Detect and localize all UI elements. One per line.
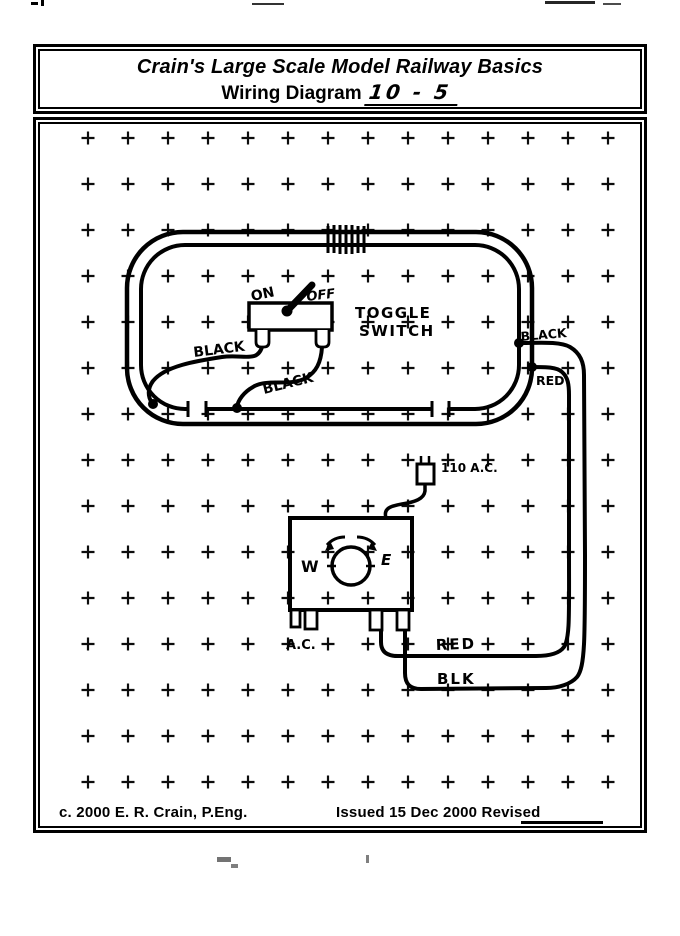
dial-east-label: E bbox=[381, 551, 392, 569]
grid-cross-marks bbox=[68, 115, 628, 805]
ac-terminal-1 bbox=[291, 610, 300, 627]
solder-joint-red bbox=[527, 362, 537, 372]
toggle-lever-pivot bbox=[282, 306, 293, 317]
red-tap-label: RED bbox=[536, 373, 565, 388]
issued-text: Issued 15 Dec 2000 Revised bbox=[336, 804, 541, 821]
red-wire-label: RED bbox=[436, 635, 477, 654]
copyright-text: c. 2000 E. R. Crain, P.Eng. bbox=[59, 804, 248, 821]
toggle-terminal-left bbox=[256, 330, 269, 347]
solder-joint bbox=[148, 399, 158, 409]
power-label: 110 A.C. bbox=[441, 461, 498, 475]
toggle-switch-caption-2: SWITCH bbox=[359, 322, 435, 340]
dial-west-label: W bbox=[301, 557, 319, 576]
ac-terminals-label: A.C. bbox=[286, 638, 316, 653]
toggle-switch-caption-1: TOGGLE bbox=[355, 304, 431, 322]
power-plug bbox=[417, 464, 434, 484]
revised-blank-line bbox=[521, 821, 603, 824]
insulated-section-hatch bbox=[328, 225, 364, 254]
speed-dial bbox=[332, 547, 370, 585]
track-terminal-black bbox=[397, 610, 409, 630]
toggle-terminal-right bbox=[316, 330, 329, 347]
solder-joint bbox=[232, 403, 242, 413]
track-terminal-red bbox=[370, 610, 382, 630]
scanned-page: Crain's Large Scale Model Railway Basics… bbox=[0, 0, 680, 936]
wiring-diagram-canvas: ON OFF TOGGLE SWITCH BLACK BLACK W E bbox=[0, 0, 680, 936]
blk-wire-label: BLK bbox=[437, 670, 476, 688]
ac-terminal-2 bbox=[305, 610, 317, 629]
